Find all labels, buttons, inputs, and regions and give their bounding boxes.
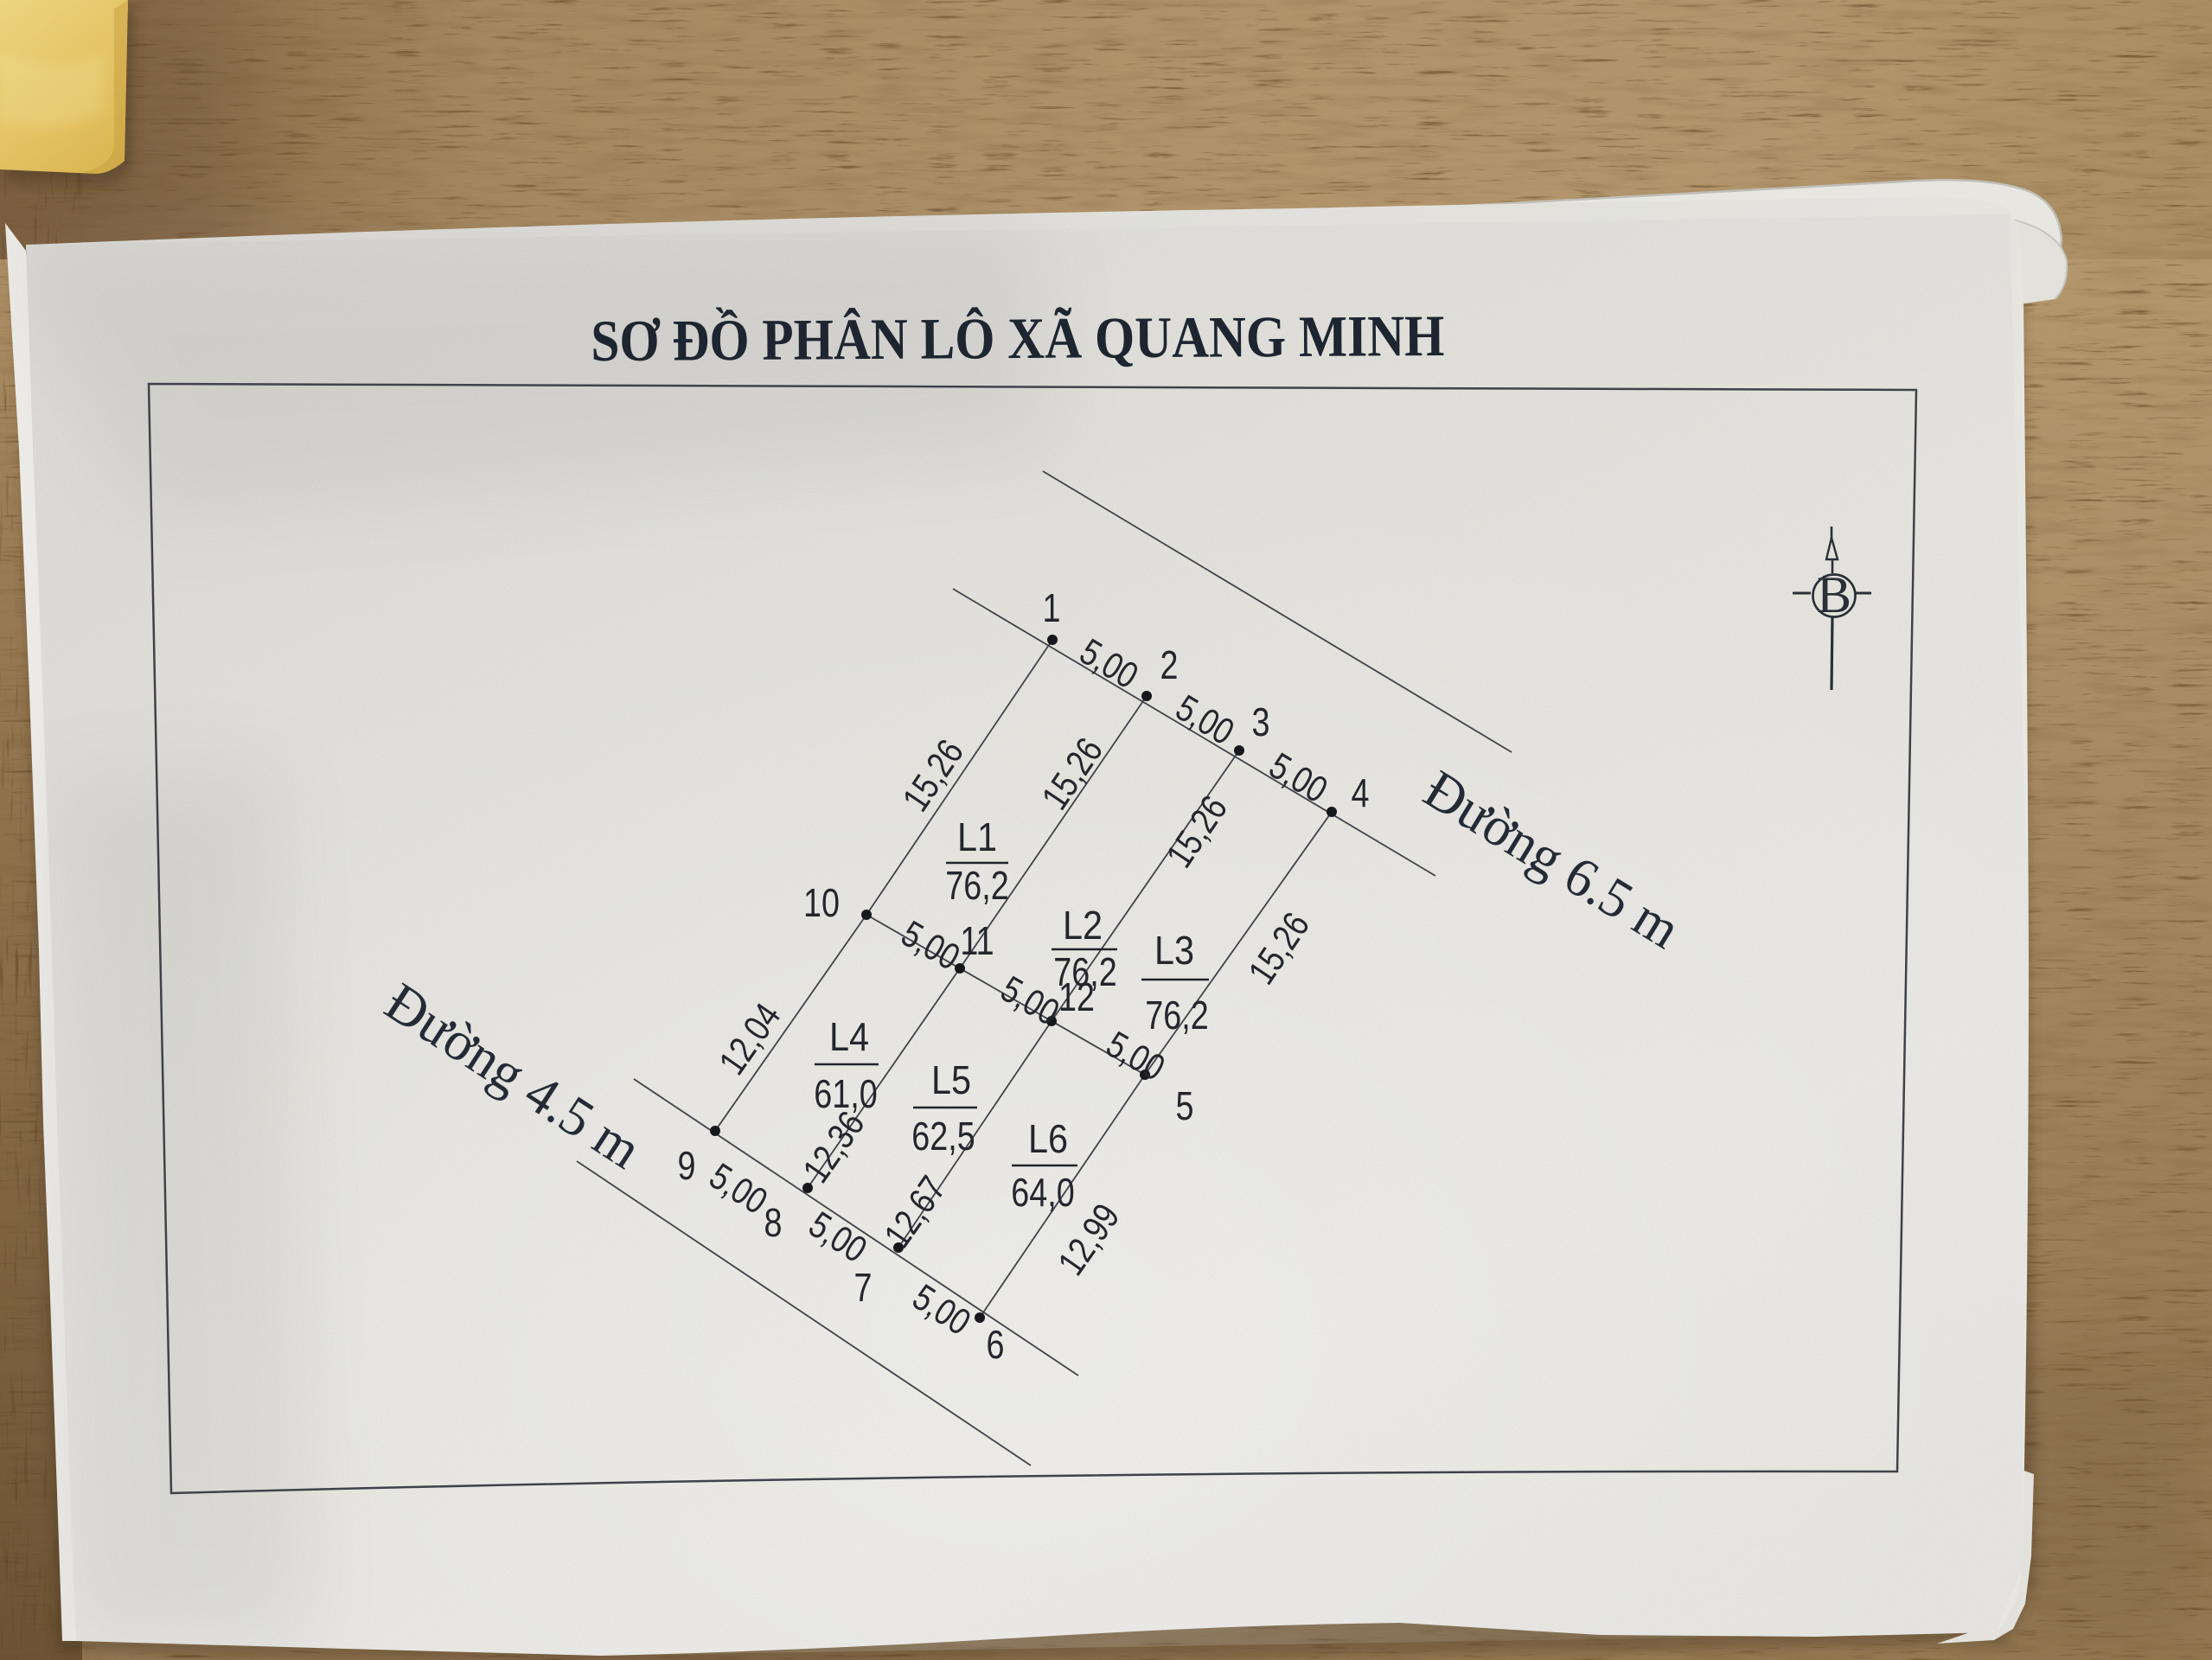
svg-text:L2: L2 xyxy=(1063,903,1103,948)
svg-text:8: 8 xyxy=(764,1200,783,1244)
svg-text:76,2: 76,2 xyxy=(945,863,1008,907)
svg-text:76,2: 76,2 xyxy=(1053,949,1116,993)
svg-text:9: 9 xyxy=(678,1143,696,1187)
svg-text:4: 4 xyxy=(1352,770,1370,814)
svg-text:B: B xyxy=(1817,566,1851,623)
svg-text:5: 5 xyxy=(1176,1083,1194,1127)
svg-text:L3: L3 xyxy=(1154,929,1194,974)
svg-text:61,0: 61,0 xyxy=(814,1071,877,1115)
svg-text:L5: L5 xyxy=(931,1058,971,1103)
svg-text:2: 2 xyxy=(1160,642,1179,686)
svg-text:7: 7 xyxy=(854,1265,873,1309)
svg-text:10: 10 xyxy=(803,880,840,924)
svg-text:76,2: 76,2 xyxy=(1145,993,1208,1037)
svg-text:3: 3 xyxy=(1252,699,1270,744)
svg-text:1: 1 xyxy=(1043,585,1061,629)
svg-text:62,5: 62,5 xyxy=(911,1114,975,1158)
svg-text:6: 6 xyxy=(987,1322,1005,1366)
svg-text:L4: L4 xyxy=(829,1015,869,1060)
svg-text:L6: L6 xyxy=(1028,1117,1068,1162)
svg-text:SƠ ĐỒ PHÂN LÔ XÃ QUANG MINH: SƠ ĐỒ PHÂN LÔ XÃ QUANG MINH xyxy=(591,303,1444,373)
svg-text:L1: L1 xyxy=(957,815,997,860)
svg-text:64,0: 64,0 xyxy=(1011,1170,1074,1214)
